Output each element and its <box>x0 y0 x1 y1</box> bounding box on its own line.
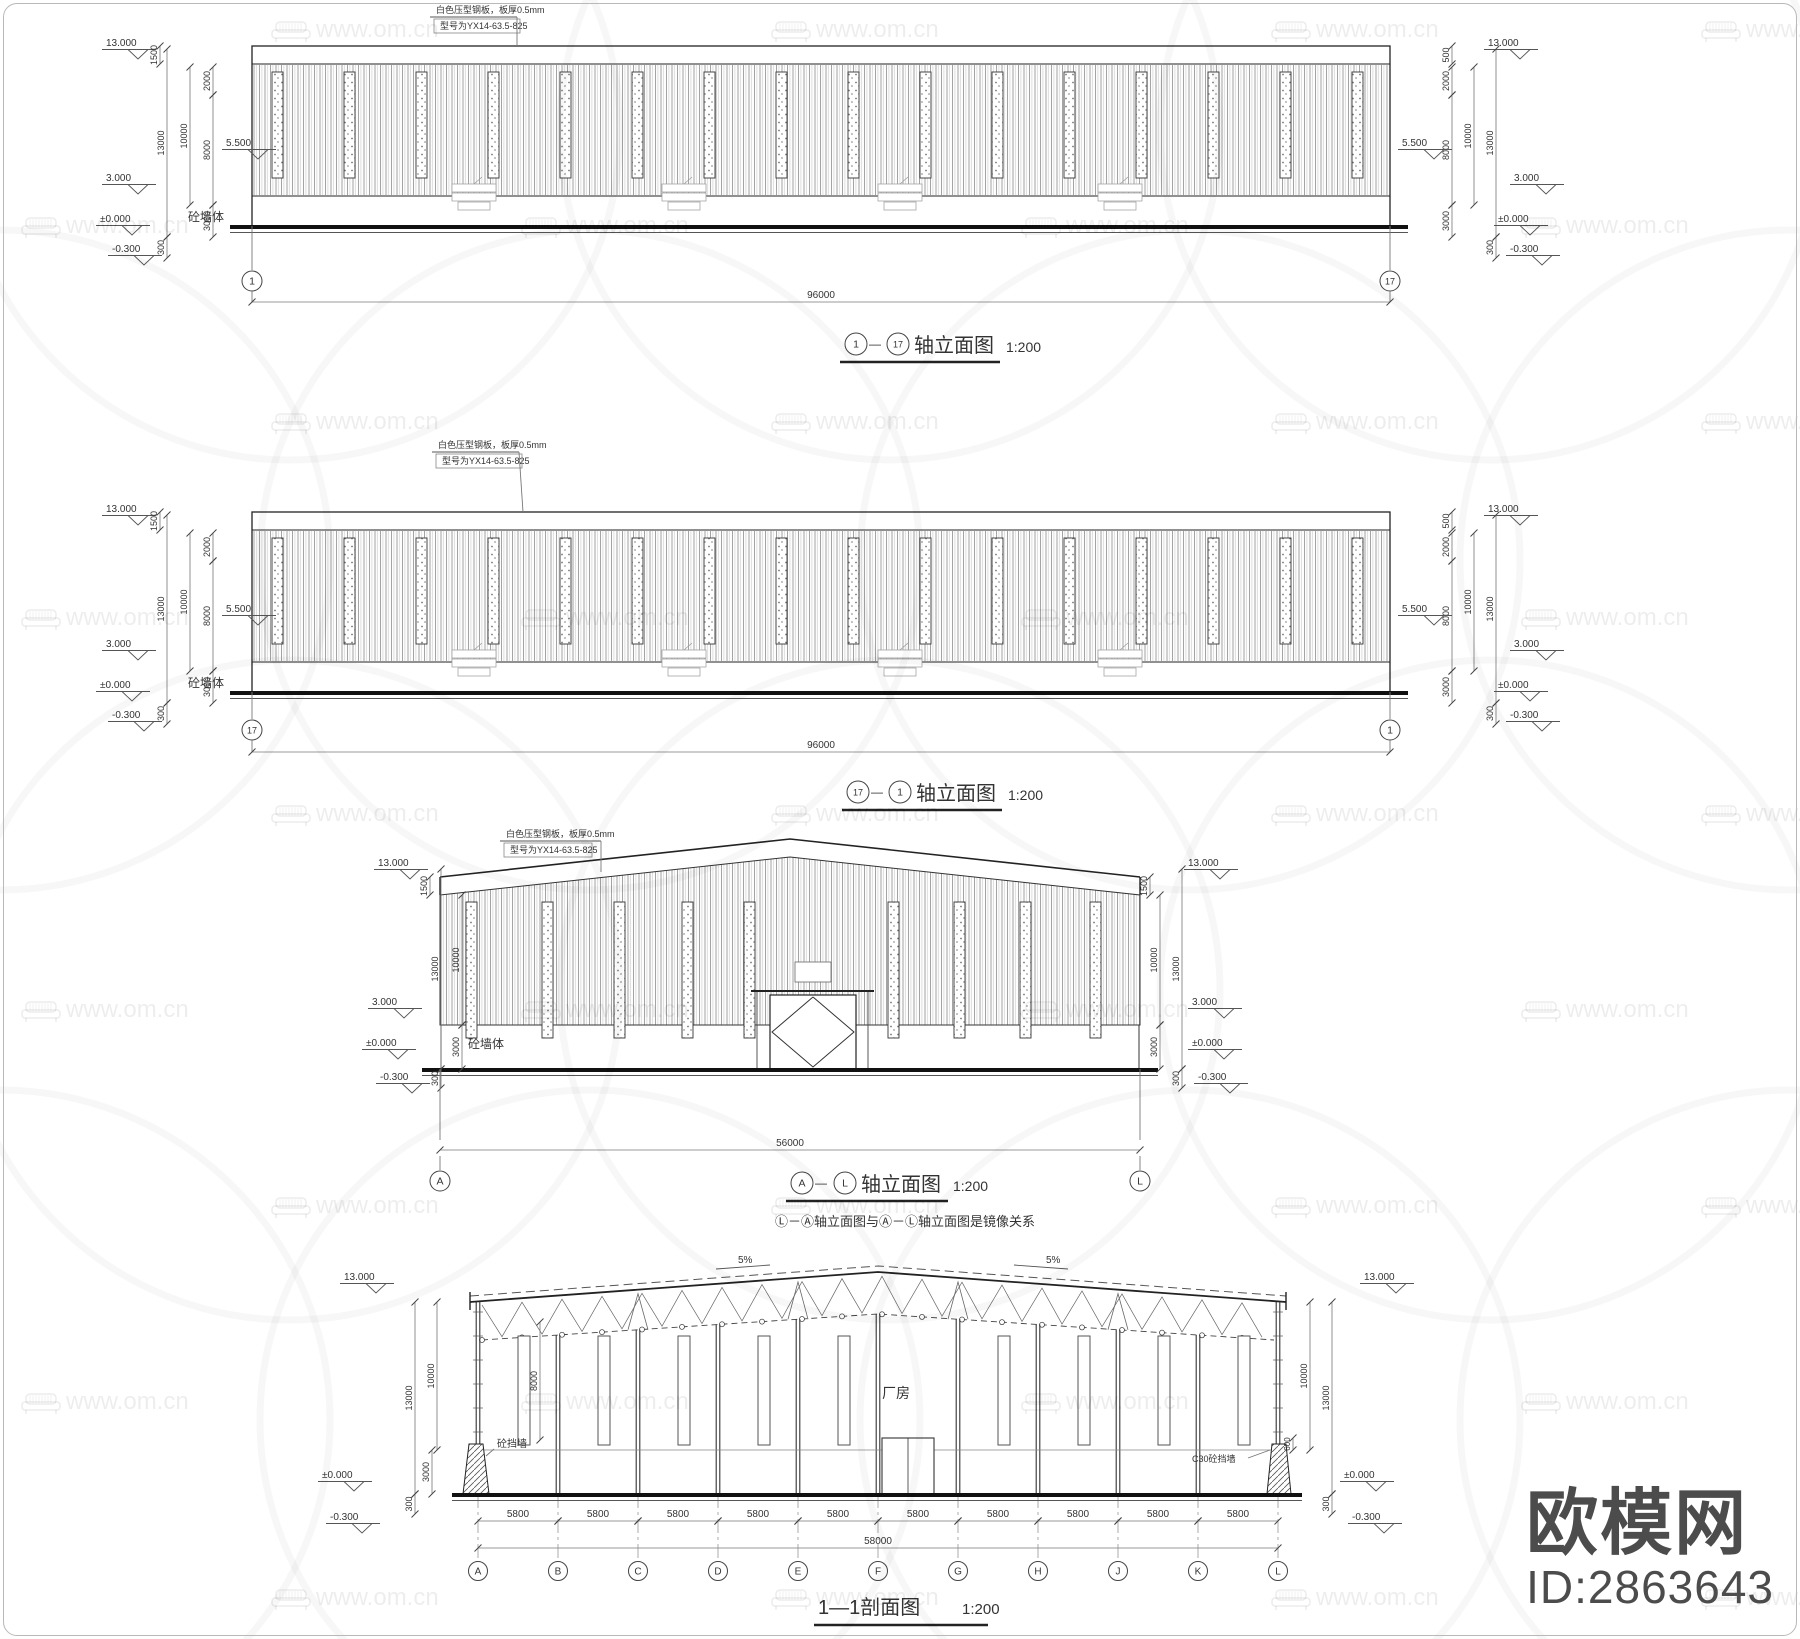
svg-text:5.500: 5.500 <box>226 138 251 149</box>
svg-text:13000: 13000 <box>430 956 440 981</box>
svg-text:3000: 3000 <box>451 1037 461 1057</box>
svg-text:13.000: 13.000 <box>1188 858 1219 869</box>
svg-text:13000: 13000 <box>1485 596 1495 621</box>
svg-text:3000: 3000 <box>421 1462 431 1482</box>
svg-text:2000: 2000 <box>202 537 212 557</box>
svg-text:3.000: 3.000 <box>106 173 131 184</box>
svg-text:10000: 10000 <box>1149 947 1159 972</box>
svg-text:3000: 3000 <box>1149 1037 1159 1057</box>
svg-text:白色压型钢板，板厚0.5mm: 白色压型钢板，板厚0.5mm <box>436 4 545 15</box>
svg-text:5%: 5% <box>738 1255 753 1266</box>
svg-text:10000: 10000 <box>179 123 189 148</box>
svg-text:—: — <box>871 785 883 799</box>
svg-text:13.000: 13.000 <box>378 858 409 869</box>
svg-text:1500: 1500 <box>149 45 159 65</box>
svg-text:3.000: 3.000 <box>106 639 131 650</box>
svg-text:1:200: 1:200 <box>962 1601 1000 1618</box>
svg-text:300: 300 <box>430 1071 440 1086</box>
svg-text:1500: 1500 <box>419 876 429 896</box>
svg-text:1:200: 1:200 <box>1006 339 1041 355</box>
svg-text:3.000: 3.000 <box>1514 173 1539 184</box>
svg-text:L: L <box>1137 1176 1143 1188</box>
svg-text:3.000: 3.000 <box>1514 639 1539 650</box>
svg-text:300: 300 <box>1485 240 1495 255</box>
svg-text:1: 1 <box>897 787 903 799</box>
svg-text:600: 600 <box>1283 1437 1292 1451</box>
svg-text:5800: 5800 <box>827 1509 850 1520</box>
svg-text:J: J <box>1116 1567 1121 1578</box>
svg-text:3.000: 3.000 <box>1192 997 1217 1008</box>
svg-text:-0.300: -0.300 <box>1510 710 1539 721</box>
svg-text:3.000: 3.000 <box>372 997 397 1008</box>
svg-text:5800: 5800 <box>507 1509 530 1520</box>
svg-text:D: D <box>714 1567 721 1578</box>
svg-text:-0.300: -0.300 <box>1198 1072 1227 1083</box>
svg-text:±0.000: ±0.000 <box>100 680 131 691</box>
svg-text:3000: 3000 <box>1441 677 1451 697</box>
svg-text:型号为YX14-63.5-825: 型号为YX14-63.5-825 <box>510 844 598 855</box>
svg-text:13000: 13000 <box>404 1385 414 1410</box>
svg-text:96000: 96000 <box>807 290 835 301</box>
svg-text:2000: 2000 <box>1441 71 1451 91</box>
svg-text:-0.300: -0.300 <box>1352 1512 1381 1523</box>
svg-text:5800: 5800 <box>667 1509 690 1520</box>
svg-text:17: 17 <box>1385 277 1395 287</box>
svg-text:1: 1 <box>853 339 859 351</box>
svg-text:17: 17 <box>853 788 863 798</box>
svg-text:-0.300: -0.300 <box>112 244 141 255</box>
svg-text:-0.300: -0.300 <box>112 710 141 721</box>
svg-text:10000: 10000 <box>451 947 461 972</box>
svg-text:5%: 5% <box>1046 1255 1061 1266</box>
svg-text:轴立面图: 轴立面图 <box>861 1173 941 1196</box>
svg-text:-0.300: -0.300 <box>380 1072 409 1083</box>
svg-text:A: A <box>436 1176 443 1188</box>
svg-text:10000: 10000 <box>1463 589 1473 614</box>
svg-text:300: 300 <box>156 706 166 721</box>
svg-text:-0.300: -0.300 <box>1510 244 1539 255</box>
brand-name: 欧模网 <box>1526 1487 1774 1563</box>
svg-text:5800: 5800 <box>1227 1509 1250 1520</box>
svg-text:白色压型钢板，板厚0.5mm: 白色压型钢板，板厚0.5mm <box>506 828 615 839</box>
svg-text:1: 1 <box>249 276 255 288</box>
svg-text:300: 300 <box>1321 1496 1331 1511</box>
svg-text:砼墙体: 砼墙体 <box>468 1037 504 1051</box>
svg-text:—: — <box>869 337 881 351</box>
brand-id: ID:2863643 <box>1526 1563 1774 1611</box>
svg-text:17: 17 <box>893 340 903 350</box>
svg-text:G: G <box>954 1567 962 1578</box>
drawing-elevation-1-17: 白色压型钢板，板厚0.5mm型号为YX14-63.5-82513.0001500… <box>96 4 1564 362</box>
svg-text:5800: 5800 <box>987 1509 1010 1520</box>
svg-text:5800: 5800 <box>1067 1509 1090 1520</box>
svg-text:2000: 2000 <box>202 71 212 91</box>
svg-text:5800: 5800 <box>1147 1509 1170 1520</box>
svg-text:8000: 8000 <box>529 1371 539 1391</box>
svg-text:K: K <box>1195 1567 1202 1578</box>
svg-text:1:200: 1:200 <box>1008 787 1043 803</box>
svg-text:8000: 8000 <box>1441 140 1451 160</box>
svg-text:13.000: 13.000 <box>1488 504 1519 515</box>
svg-text:C: C <box>634 1567 641 1578</box>
svg-text:13.000: 13.000 <box>1364 1272 1395 1283</box>
svg-text:1500: 1500 <box>1139 876 1149 896</box>
svg-text:L: L <box>1275 1567 1281 1578</box>
svg-text:±0.000: ±0.000 <box>366 1038 397 1049</box>
svg-text:3000: 3000 <box>1441 211 1451 231</box>
svg-text:13.000: 13.000 <box>344 1272 375 1283</box>
cad-drawing-sheet: 白色压型钢板，板厚0.5mm型号为YX14-63.5-82513.0001500… <box>0 0 1800 1639</box>
svg-text:5800: 5800 <box>907 1509 930 1520</box>
svg-text:砼挡墙: 砼挡墙 <box>497 1437 527 1450</box>
svg-text:±0.000: ±0.000 <box>1344 1470 1375 1481</box>
svg-text:13.000: 13.000 <box>106 38 137 49</box>
svg-text:10000: 10000 <box>1299 1363 1309 1388</box>
svg-text:A: A <box>798 1178 805 1190</box>
svg-text:500: 500 <box>1441 47 1451 62</box>
svg-text:±0.000: ±0.000 <box>1498 214 1529 225</box>
svg-text:L: L <box>842 1178 848 1190</box>
svg-text:1—1剖面图: 1—1剖面图 <box>818 1596 920 1619</box>
svg-text:10000: 10000 <box>426 1363 436 1388</box>
brand-watermark: 欧模网 ID:2863643 <box>1526 1487 1774 1611</box>
svg-text:8000: 8000 <box>202 606 212 626</box>
svg-text:13000: 13000 <box>1171 956 1181 981</box>
svg-text:Ⓛ－Ⓐ轴立面图与Ⓐ－Ⓛ轴立面图是镜像关系: Ⓛ－Ⓐ轴立面图与Ⓐ－Ⓛ轴立面图是镜像关系 <box>775 1214 1035 1229</box>
svg-text:±0.000: ±0.000 <box>1498 680 1529 691</box>
svg-text:型号为YX14-63.5-825: 型号为YX14-63.5-825 <box>440 20 528 31</box>
svg-text:5800: 5800 <box>747 1509 770 1520</box>
svg-text:13000: 13000 <box>1321 1385 1331 1410</box>
svg-text:500: 500 <box>1441 513 1451 528</box>
svg-text:10000: 10000 <box>1463 123 1473 148</box>
svg-text:1: 1 <box>1387 725 1393 737</box>
svg-text:砼墙体: 砼墙体 <box>188 210 224 224</box>
svg-text:13.000: 13.000 <box>1488 38 1519 49</box>
svg-text:5800: 5800 <box>587 1509 610 1520</box>
svg-text:±0.000: ±0.000 <box>1192 1038 1223 1049</box>
svg-text:300: 300 <box>156 240 166 255</box>
svg-text:±0.000: ±0.000 <box>322 1470 353 1481</box>
svg-text:轴立面图: 轴立面图 <box>914 334 994 357</box>
svg-text:8000: 8000 <box>202 140 212 160</box>
svg-text:2000: 2000 <box>1441 537 1451 557</box>
svg-text:白色压型钢板，板厚0.5mm: 白色压型钢板，板厚0.5mm <box>438 439 547 450</box>
svg-text:13.000: 13.000 <box>106 504 137 515</box>
svg-text:300: 300 <box>1171 1071 1181 1086</box>
svg-text:5.500: 5.500 <box>226 604 251 615</box>
drawing-elevation-17-1: 白色压型钢板，板厚0.5mm型号为YX14-63.5-82513.0001500… <box>96 439 1564 810</box>
svg-text:C30砼挡墙: C30砼挡墙 <box>1192 1453 1236 1464</box>
svg-text:10000: 10000 <box>179 589 189 614</box>
svg-text:-0.300: -0.300 <box>330 1512 359 1523</box>
svg-text:13000: 13000 <box>1485 130 1495 155</box>
svg-text:厂房: 厂房 <box>882 1385 910 1401</box>
svg-text:—: — <box>815 1176 827 1190</box>
svg-text:300: 300 <box>404 1496 414 1511</box>
svg-text:型号为YX14-63.5-825: 型号为YX14-63.5-825 <box>442 455 530 466</box>
svg-text:5.500: 5.500 <box>1402 604 1427 615</box>
svg-text:H: H <box>1034 1567 1041 1578</box>
svg-text:轴立面图: 轴立面图 <box>916 782 996 805</box>
drawing-section-1-1: ABCDEFGHJKL58005800580058005800580058005… <box>318 1255 1414 1625</box>
svg-text:砼墙体: 砼墙体 <box>188 676 224 690</box>
svg-text:300: 300 <box>1485 706 1495 721</box>
svg-text:F: F <box>875 1567 881 1578</box>
svg-text:8000: 8000 <box>1441 606 1451 626</box>
svg-text:5.500: 5.500 <box>1402 138 1427 149</box>
svg-text:A: A <box>475 1567 482 1578</box>
svg-text:B: B <box>555 1567 562 1578</box>
svg-text:58000: 58000 <box>864 1536 892 1547</box>
drawing-elevation-A-L: 白色压型钢板，板厚0.5mm型号为YX14-63.5-82513.0001500… <box>362 828 1248 1229</box>
svg-text:13000: 13000 <box>156 130 166 155</box>
svg-text:13000: 13000 <box>156 596 166 621</box>
svg-text:1500: 1500 <box>149 511 159 531</box>
svg-text:17: 17 <box>247 726 257 736</box>
svg-text:96000: 96000 <box>807 740 835 751</box>
svg-text:56000: 56000 <box>776 1138 804 1149</box>
svg-text:±0.000: ±0.000 <box>100 214 131 225</box>
svg-text:E: E <box>795 1567 802 1578</box>
svg-text:1:200: 1:200 <box>953 1178 988 1194</box>
